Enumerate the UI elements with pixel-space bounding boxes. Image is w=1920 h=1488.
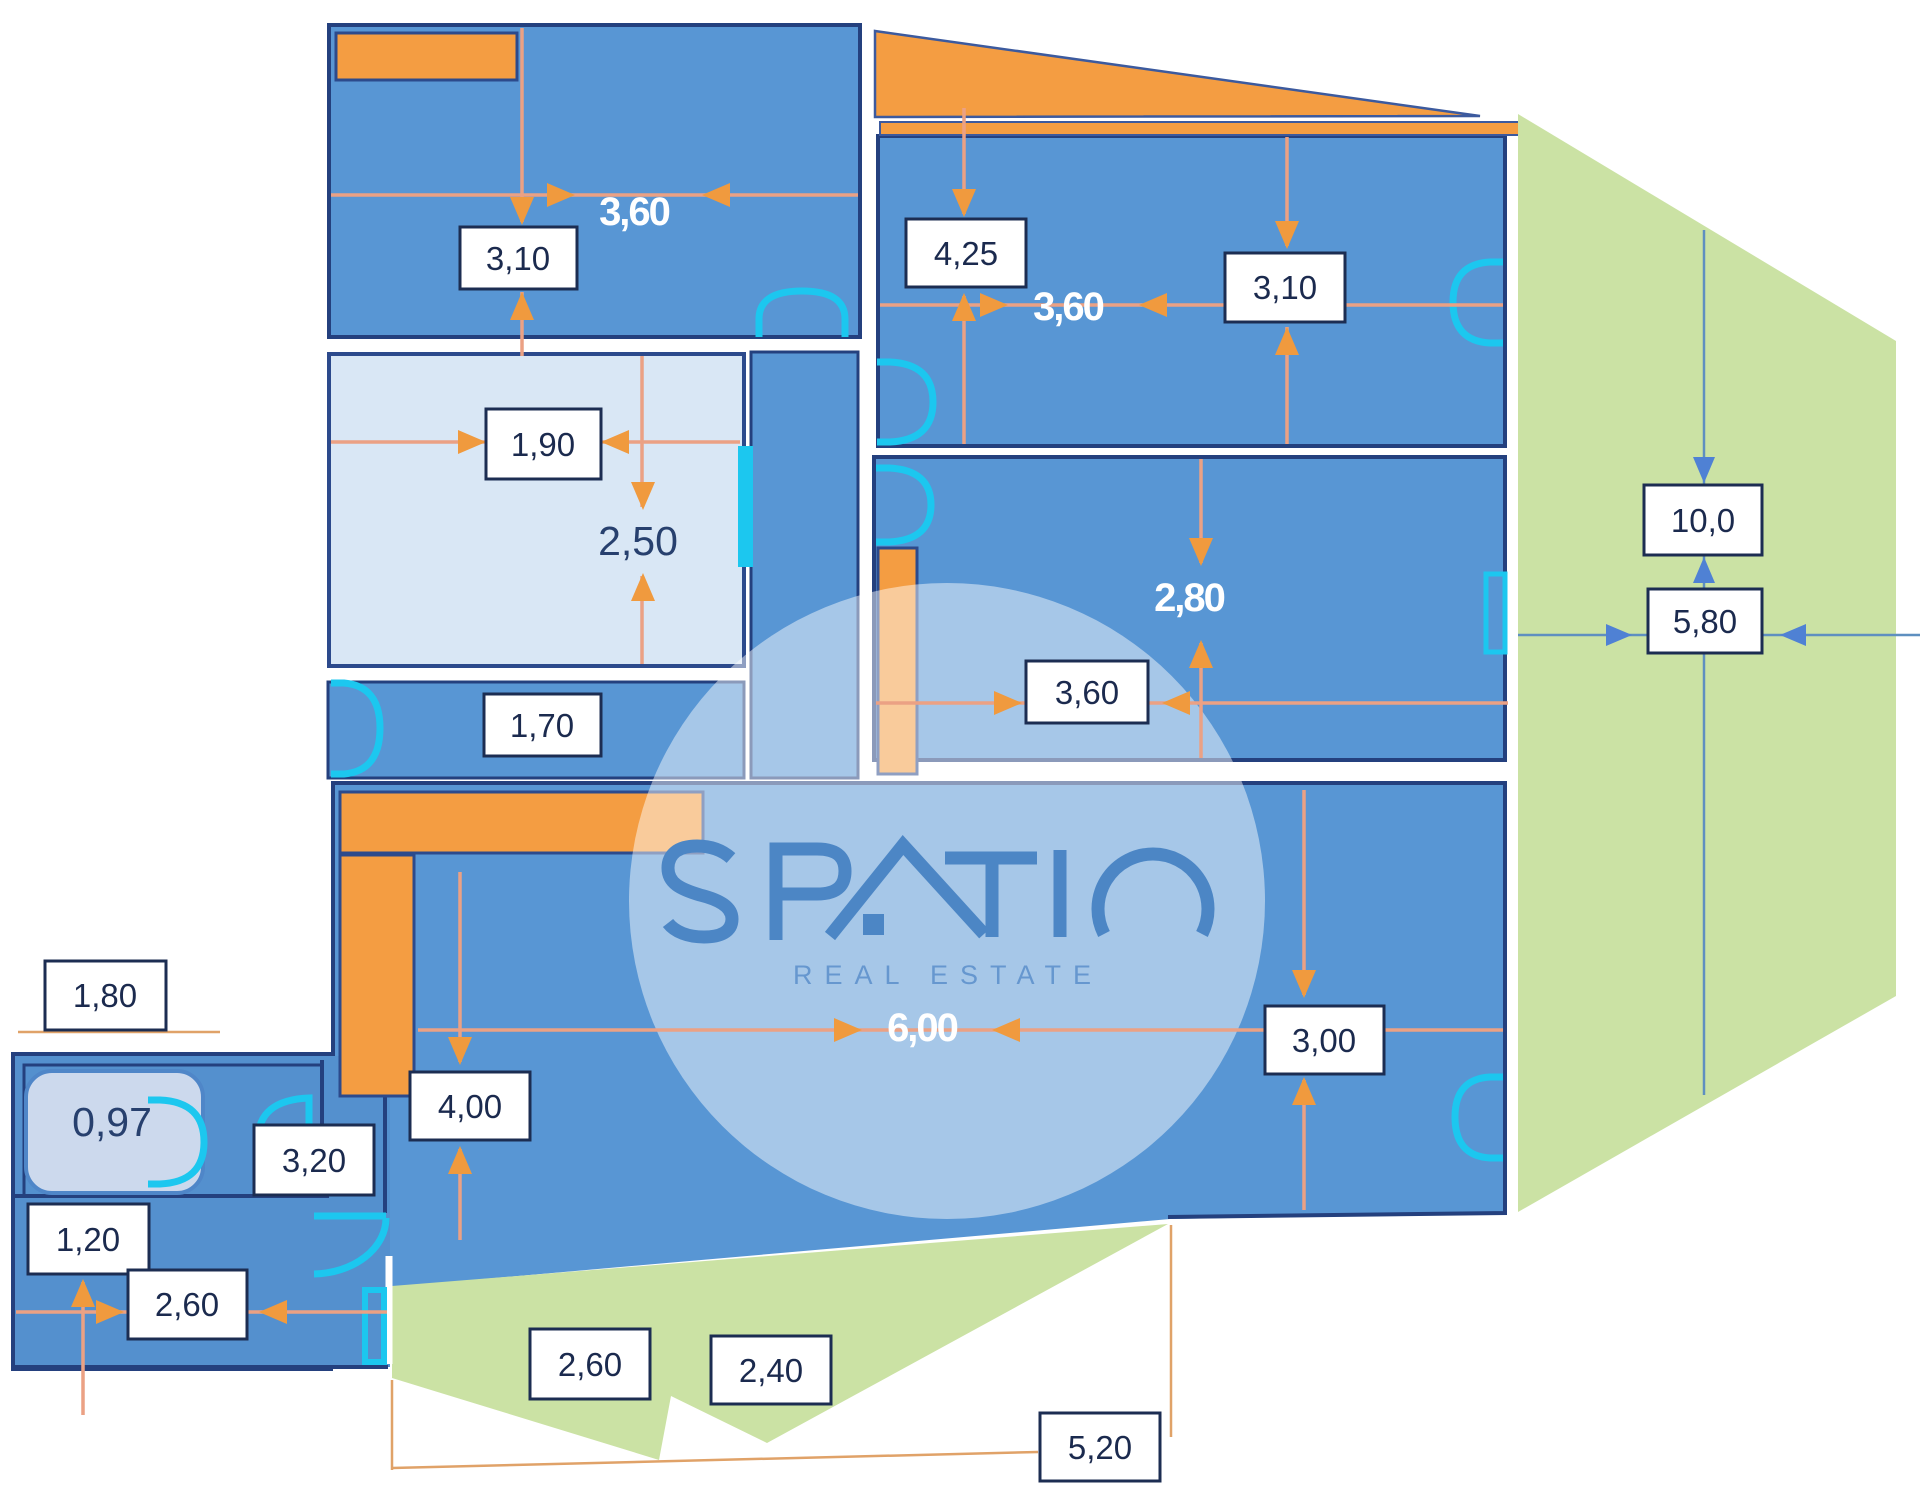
svg-text:3,20: 3,20 — [282, 1142, 346, 1179]
svg-text:5,20: 5,20 — [1068, 1429, 1132, 1466]
svg-text:3,60: 3,60 — [599, 190, 670, 234]
svg-text:3,60: 3,60 — [1055, 674, 1119, 711]
svg-text:2,60: 2,60 — [558, 1346, 622, 1383]
svg-text:3,60: 3,60 — [1033, 285, 1104, 329]
svg-text:6,00: 6,00 — [887, 1006, 958, 1050]
svg-text:1,90: 1,90 — [511, 426, 575, 463]
svg-text:3,10: 3,10 — [1253, 269, 1317, 306]
svg-text:0,97: 0,97 — [72, 1099, 152, 1145]
svg-text:2,60: 2,60 — [155, 1286, 219, 1323]
svg-text:5,80: 5,80 — [1673, 603, 1737, 640]
svg-text:2,50: 2,50 — [598, 518, 678, 564]
svg-text:2,80: 2,80 — [1154, 576, 1225, 620]
svg-text:3,00: 3,00 — [1292, 1022, 1356, 1059]
svg-text:1,70: 1,70 — [510, 707, 574, 744]
svg-text:4,00: 4,00 — [438, 1088, 502, 1125]
svg-text:4,25: 4,25 — [934, 235, 998, 272]
svg-text:3,10: 3,10 — [486, 240, 550, 277]
svg-text:2,40: 2,40 — [739, 1352, 803, 1389]
svg-text:10,0: 10,0 — [1671, 502, 1735, 539]
svg-text:REAL ESTATE: REAL ESTATE — [793, 960, 1103, 990]
svg-text:1,80: 1,80 — [73, 977, 137, 1014]
svg-text:1,20: 1,20 — [56, 1221, 120, 1258]
